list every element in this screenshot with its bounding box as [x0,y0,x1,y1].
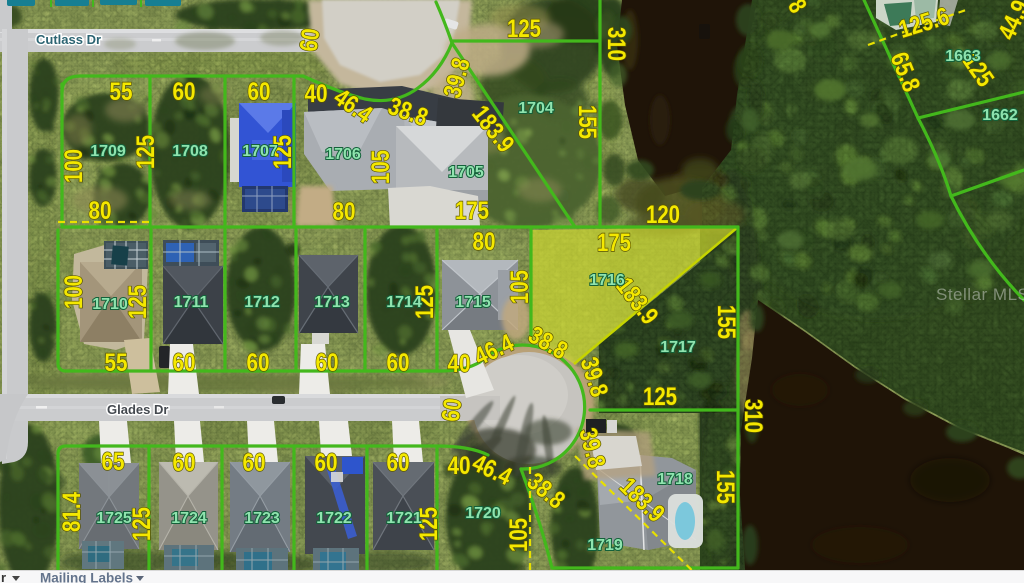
svg-text:Mailing Labels: Mailing Labels [40,571,133,583]
svg-text:155: 155 [573,105,601,139]
svg-text:1722: 1722 [316,510,352,527]
svg-text:Stellar MLS: Stellar MLS [936,285,1024,304]
svg-text:310: 310 [602,27,630,61]
svg-text:1706: 1706 [325,146,361,163]
svg-text:1710: 1710 [92,296,128,313]
svg-text:80: 80 [333,198,356,226]
svg-text:80: 80 [89,197,112,225]
svg-text:60: 60 [387,449,410,477]
svg-text:175: 175 [597,229,631,257]
svg-text:175: 175 [455,197,489,225]
svg-text:60: 60 [173,349,196,377]
svg-text:80: 80 [473,228,496,256]
svg-text:125: 125 [132,135,160,169]
svg-text:155: 155 [712,305,740,339]
svg-text:1704: 1704 [518,100,554,117]
svg-text:60: 60 [437,397,468,423]
svg-text:1720: 1720 [465,505,501,522]
svg-text:1709: 1709 [90,143,126,160]
svg-text:1713: 1713 [314,294,350,311]
svg-text:100: 100 [60,275,88,309]
svg-text:1719: 1719 [587,537,623,554]
svg-text:155: 155 [711,470,739,504]
svg-text:60: 60 [248,78,271,106]
svg-text:1714: 1714 [386,294,422,311]
svg-text:40: 40 [448,452,471,480]
svg-text:125: 125 [643,383,677,411]
svg-text:Glades Dr: Glades Dr [107,402,168,417]
svg-text:1712: 1712 [244,294,280,311]
svg-text:1724: 1724 [171,510,207,527]
svg-text:60: 60 [247,349,270,377]
svg-text:60: 60 [173,449,196,477]
svg-text:40: 40 [305,80,328,108]
svg-text:1723: 1723 [244,510,280,527]
svg-text:1663: 1663 [945,48,981,65]
svg-text:65: 65 [102,448,125,476]
svg-text:1715: 1715 [455,294,491,311]
svg-text:60: 60 [295,27,326,53]
svg-text:125: 125 [507,15,541,43]
svg-text:120: 120 [646,201,680,229]
svg-text:40: 40 [448,350,471,378]
svg-text:310: 310 [739,399,767,433]
svg-text:60: 60 [387,349,410,377]
svg-text:1705: 1705 [448,164,484,181]
svg-text:1708: 1708 [172,143,208,160]
svg-text:55: 55 [110,78,133,106]
svg-text:1662: 1662 [982,107,1018,124]
svg-text:55: 55 [105,349,128,377]
svg-text:81.4: 81.4 [58,492,86,532]
svg-text:1716: 1716 [589,272,625,289]
svg-text:1721: 1721 [386,510,422,527]
svg-text:105: 105 [367,150,395,184]
svg-text:105: 105 [506,270,534,304]
svg-text:60: 60 [243,449,266,477]
svg-text:Cutlass Dr: Cutlass Dr [36,32,101,47]
svg-text:1718: 1718 [657,471,693,488]
svg-text:100: 100 [60,149,88,183]
svg-text:r: r [1,570,6,583]
svg-text:1707: 1707 [242,143,278,160]
svg-text:1725: 1725 [96,510,132,527]
svg-text:60: 60 [316,349,339,377]
svg-text:125: 125 [128,507,156,541]
svg-text:105: 105 [505,518,533,552]
svg-text:125: 125 [124,285,152,319]
svg-text:1717: 1717 [660,339,696,356]
svg-text:1711: 1711 [174,294,209,311]
svg-text:60: 60 [315,449,338,477]
svg-text:60: 60 [173,78,196,106]
